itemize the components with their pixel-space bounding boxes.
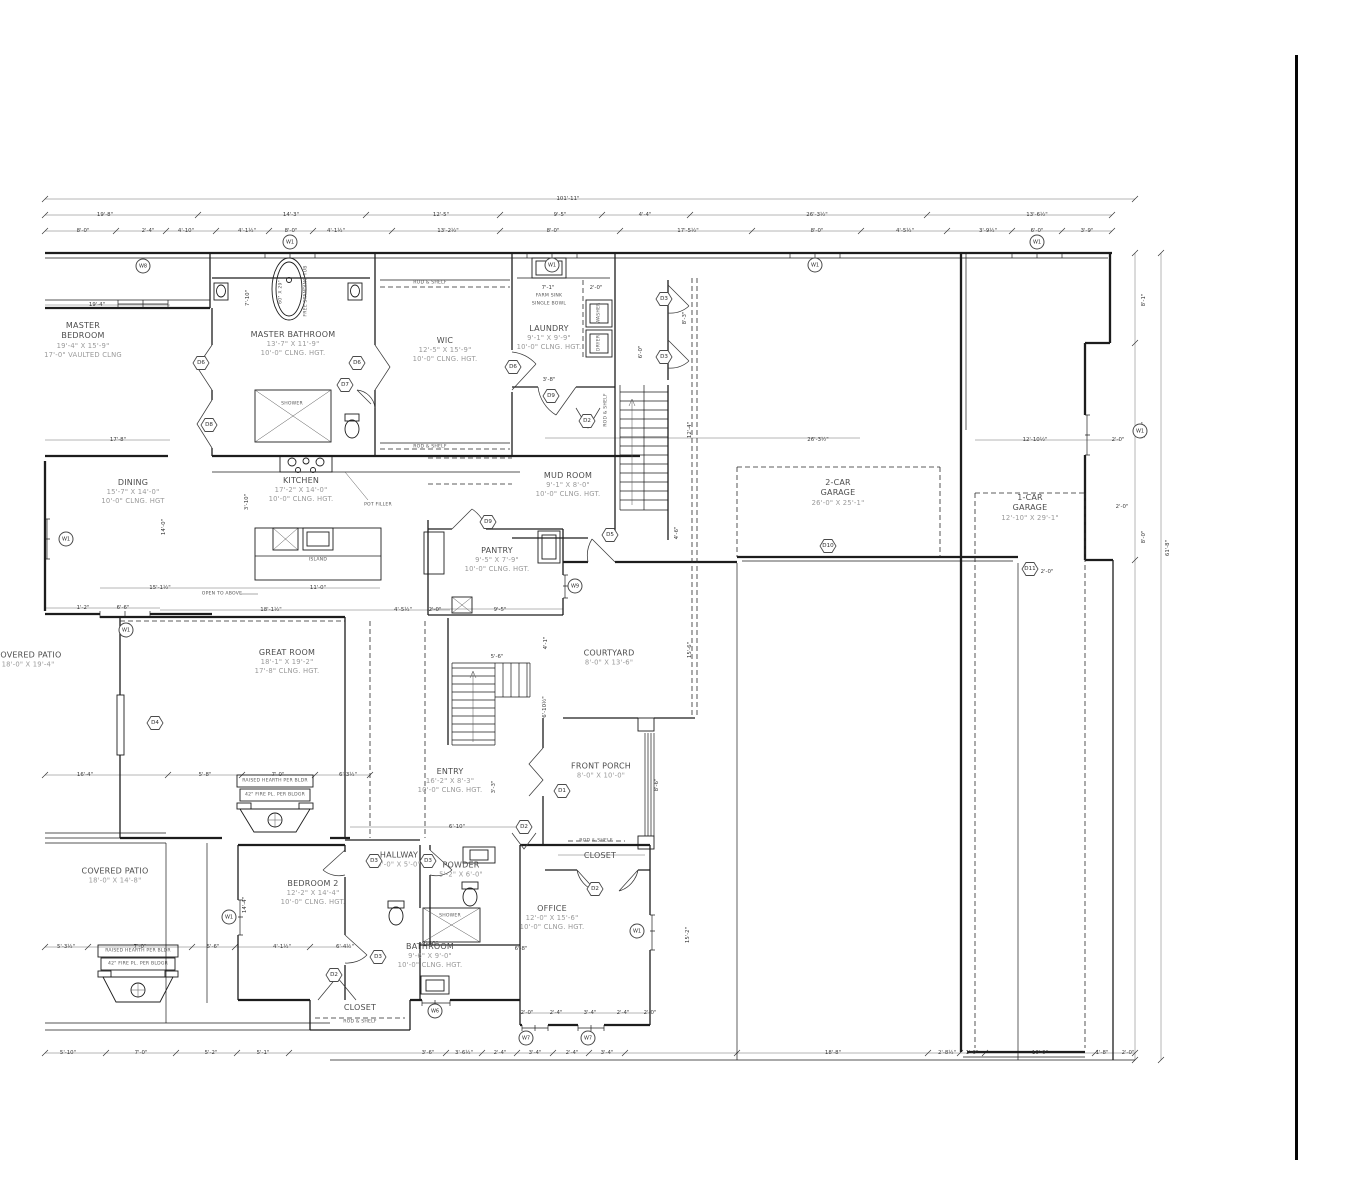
dimension-label: 17'-8" — [110, 437, 126, 443]
dimension-label: 26'-3½" — [806, 212, 827, 218]
dimension-label: 13'-6½" — [1026, 212, 1047, 218]
dimension-label: 3'-9½" — [979, 228, 997, 234]
dimension-label: 19'-4" — [89, 302, 105, 308]
tub-size-label: 60" X 29" — [279, 280, 284, 304]
dimension-label: 4'-5½" — [394, 607, 412, 613]
dryer-label: DRYER — [597, 335, 602, 351]
dimension-label: 4'-5½" — [896, 228, 914, 234]
window-marker: W1 — [1030, 235, 1045, 250]
dimension-label: 8'-3" — [682, 312, 688, 325]
room-label-entry: ENTRY16'-2" X 8'-3"10'-0" CLNG. HGT. — [418, 767, 483, 795]
room-label-laundry: LAUNDRY9'-1" X 9'-9"10'-0" CLNG. HGT. — [517, 324, 582, 352]
room-label-front-porch: FRONT PORCH8'-0" X 10'-0" — [571, 761, 631, 780]
window-marker: W1 — [1133, 424, 1148, 439]
rod-and-shelf-label: ROD & SHELF — [579, 839, 613, 844]
room-label-pantry: PANTRY9'-5" X 7'-9"10'-0" CLNG. HGT. — [465, 546, 530, 574]
room-label-hallway: HALLWAY4'-0" X 5'-0" — [377, 850, 421, 869]
dimension-label: 101'-11" — [556, 196, 579, 202]
dimension-label: 10'-0" — [1032, 1050, 1048, 1056]
room-label-dining: DINING15'-7" X 14'-0"10'-0" CLNG. HGT — [101, 478, 164, 506]
dimension-label: 2'-4" — [566, 1050, 579, 1056]
dimension-label: 1'-8" — [1096, 1050, 1109, 1056]
dimension-label: 6'-10" — [449, 824, 465, 830]
dimension-label: 9'-5" — [554, 212, 567, 218]
rod-and-shelf-label: ROD & SHELF — [343, 1020, 377, 1025]
dimension-label: 5'-3½" — [57, 944, 75, 950]
dimension-label: 9'-10" — [422, 941, 438, 947]
dimension-label: 2'-0" — [644, 1010, 657, 1016]
dimension-label: 7'-1" — [542, 285, 555, 291]
dimension-label: 4'-10" — [178, 228, 194, 234]
dimension-label: 6'-6" — [117, 605, 130, 611]
dimension-label: 6'-4½" — [336, 944, 354, 950]
dimension-label: 6'-0" — [638, 346, 644, 359]
room-label-courtyard: COURTYARD8'-0" X 13'-6" — [584, 648, 635, 667]
rod-and-shelf-label: ROD & SHELF — [413, 445, 447, 450]
dimension-label: 4'-1½" — [273, 944, 291, 950]
dimension-label: 5'-6" — [491, 654, 504, 660]
room-label-master-bathroom: MASTER BATHROOM13'-7" X 11'-9"10'-0" CLN… — [251, 330, 336, 358]
dimension-label: 9'-5" — [494, 607, 507, 613]
dimension-label: 3'-4" — [529, 1050, 542, 1056]
dimension-label: 26'-3½" — [807, 437, 828, 443]
room-label-2-car-garage: 2-CARGARAGE26'-0" X 25'-1" — [812, 478, 865, 508]
raised-hearth-label: RAISED HEARTH PER BLDR — [105, 949, 171, 954]
dimension-label: 6'-8" — [515, 946, 528, 952]
room-label-wic: WIC12'-5" X 15'-9"10'-0" CLNG. HGT. — [413, 336, 478, 364]
window-marker: W7 — [519, 1031, 534, 1046]
window-marker: W1 — [59, 532, 74, 547]
room-label-1-car-garage: 1-CARGARAGE12'-10" X 29'-1" — [1001, 493, 1058, 523]
dimension-label: 8'-6" — [654, 779, 660, 792]
dimension-label: 15'-6" — [687, 642, 693, 658]
dimension-label: 2'-0" — [1041, 569, 1054, 575]
dimension-label: 6'-10½" — [542, 696, 548, 717]
room-label-office: OFFICE12'-0" X 15'-6"10'-0" CLNG. HGT. — [520, 904, 585, 932]
single-bowl-label: SINGLE BOWL — [532, 302, 566, 307]
floor-plan-sheet: { "colors":{"line":"#1d1d1d","room_name"… — [0, 0, 1350, 1200]
dimension-label: 4'-4" — [639, 212, 652, 218]
dimension-label: 16'-4" — [77, 772, 93, 778]
dimension-label: 1'-2" — [77, 605, 90, 611]
dimension-label: 3'-4" — [601, 1050, 614, 1056]
dimension-label: 3'-3" — [491, 781, 497, 794]
pot-filler-label: POT FILLER — [364, 503, 392, 508]
dimension-label: 8'-1" — [1141, 294, 1147, 307]
dimension-label: 12'-4" — [687, 422, 693, 438]
dimension-label: 17'-5½" — [677, 228, 698, 234]
dimension-label: 2'-0" — [590, 285, 603, 291]
dimension-label: 7'-10" — [245, 290, 251, 306]
raised-hearth-label: RAISED HEARTH PER BLDR — [242, 779, 308, 784]
dimension-label: 4'-1½" — [238, 228, 256, 234]
dimension-label: 1'-0" — [966, 1050, 979, 1056]
dimension-label: 5'-10" — [60, 1050, 76, 1056]
fireplace-label: 42" FIRE PL. PER BLDGR — [108, 962, 168, 967]
dimension-label: 8'-0" — [285, 228, 298, 234]
island-label: ISLAND — [309, 558, 327, 563]
shower-label: SHOWER — [439, 914, 461, 919]
window-marker: W8 — [136, 259, 151, 274]
room-label-covered-patio-lower: COVERED PATIO18'-0" X 14'-8" — [82, 866, 149, 885]
dimension-label: 3'-8" — [543, 377, 556, 383]
dimension-label: 2'-0" — [429, 607, 442, 613]
free-standing-tub-label: FREE STANDING TUB — [304, 265, 309, 316]
room-label-closet-entry: CLOSET — [584, 851, 616, 861]
dimension-label: 3'-9" — [1081, 228, 1094, 234]
room-label-great-room: GREAT ROOM18'-1" X 19'-2"17'-8" CLNG. HG… — [255, 648, 320, 676]
dimension-label: 4'-6" — [674, 527, 680, 540]
dimension-label: 5'-8" — [199, 772, 212, 778]
dimension-label: 4'-1½" — [327, 228, 345, 234]
dimension-label: 14'-4" — [242, 897, 248, 913]
sheet-border — [1295, 55, 1298, 1160]
dimension-label: 13'-2½" — [437, 228, 458, 234]
dimension-label: 14'-3" — [283, 212, 299, 218]
window-marker: W1 — [630, 924, 645, 939]
room-label-closet-bedroom2: CLOSET — [344, 1003, 376, 1013]
room-label-powder: POWDER5'-2" X 6'-0" — [439, 860, 483, 879]
dimension-label: 2'-4" — [494, 1050, 507, 1056]
dimension-label: 2'-4" — [550, 1010, 563, 1016]
dimension-label: 5'-2" — [205, 1050, 218, 1056]
dimension-label: 2'-8½" — [938, 1050, 956, 1056]
window-marker: W1 — [222, 910, 237, 925]
window-marker: W1 — [283, 235, 298, 250]
window-marker: W1 — [808, 258, 823, 273]
dimension-label: 3'-10" — [244, 494, 250, 510]
dimension-label: 3'-4" — [584, 1010, 597, 1016]
dimension-label: 8'-0" — [1141, 531, 1147, 544]
room-label-master-bedroom: MASTERBEDROOM19'-4" X 15'-9"17'-0" VAULT… — [44, 321, 122, 359]
dimension-label: 2'-4" — [617, 1010, 630, 1016]
open-to-above-label: OPEN TO ABOVE — [202, 592, 242, 597]
dimension-label: 14'-0" — [161, 519, 167, 535]
dimension-label: 61'-8" — [1165, 540, 1171, 556]
window-marker: W7 — [581, 1031, 596, 1046]
stair-arrows — [240, 399, 635, 742]
dimension-label: 2'-4" — [142, 228, 155, 234]
dimension-label: 2'-0" — [1116, 504, 1129, 510]
washer-label: WASHER — [597, 302, 602, 323]
rod-and-shelf-label: ROD & SHELF — [413, 281, 447, 286]
floor-plan-drawing — [0, 0, 1350, 1200]
dimension-label: 5'-1" — [257, 1050, 270, 1056]
dimension-label: 2'-0" — [1112, 437, 1125, 443]
walls-exterior — [45, 253, 1113, 1052]
dimension-label: 11'-0" — [310, 585, 326, 591]
dimension-label: 8'-0" — [77, 228, 90, 234]
dimension-label: 18'-8" — [825, 1050, 841, 1056]
window-marker: W9 — [568, 579, 583, 594]
dimension-label: 18'-1½" — [260, 607, 281, 613]
dimension-label: 7'-0" — [135, 1050, 148, 1056]
window-marker: W1 — [119, 623, 134, 638]
window-marker: W1 — [545, 258, 560, 273]
room-label-kitchen: KITCHEN17'-2" X 14'-0"10'-0" CLNG. HGT. — [269, 476, 334, 504]
dimension-label: 5'-6" — [207, 944, 220, 950]
dimension-label: 12'-10½" — [1023, 437, 1048, 443]
dimension-label: 3'-6" — [422, 1050, 435, 1056]
room-label-bedroom-2: BEDROOM 212'-2" X 14'-4"10'-0" CLNG. HGT… — [281, 879, 346, 907]
rod-and-shelf-label: ROD & SHELF — [604, 393, 609, 427]
dimension-label: 15'-2" — [685, 927, 691, 943]
fixtures — [98, 258, 654, 1002]
farm-sink-label: FARM SINK — [536, 294, 563, 299]
window-marker: W6 — [428, 1004, 443, 1019]
dimension-label: 4'-1" — [543, 637, 549, 650]
room-label-covered-patio-upper: COVERED PATIO18'-0" X 19'-4" — [0, 650, 61, 669]
dimension-label: 3'-6½" — [455, 1050, 473, 1056]
fireplace-label: 42" FIRE PL. PER BLDGR — [245, 793, 305, 798]
dimension-ticks — [42, 196, 1164, 1063]
dimension-label: 12'-5" — [433, 212, 449, 218]
dimension-label: 8'-0" — [811, 228, 824, 234]
dimension-label: 8'-0" — [547, 228, 560, 234]
dimension-label: 19'-8" — [97, 212, 113, 218]
dimension-label: 7'-0" — [272, 772, 285, 778]
dimension-label: 2'-0" — [1122, 1050, 1135, 1056]
shower-label: SHOWER — [281, 402, 303, 407]
dimension-label: 2'-0" — [521, 1010, 534, 1016]
dimension-label: 6'-0" — [1031, 228, 1044, 234]
room-label-mud-room: MUD ROOM9'-1" X 8'-0"10'-0" CLNG. HGT. — [536, 471, 601, 499]
dimension-label: 15'-1½" — [149, 585, 170, 591]
dimension-label: 6'-3½" — [339, 772, 357, 778]
